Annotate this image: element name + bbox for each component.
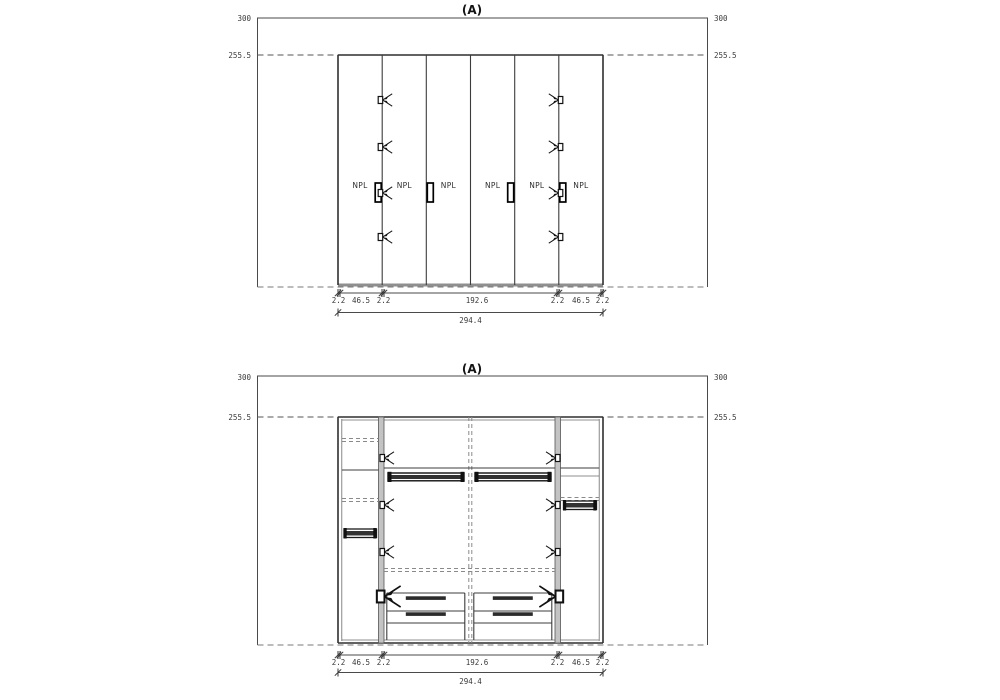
- ceiling-height-label: 300: [714, 373, 728, 382]
- door-label: NPL: [352, 181, 368, 190]
- dim-label: 46.5: [352, 658, 370, 667]
- dimension-row: 2.2 46.5 2.2 192.6 2.2 46.5 2.2: [332, 651, 610, 667]
- room-outline: [258, 18, 708, 287]
- hinge-fork-icon: [549, 94, 563, 106]
- door-label: NPL: [441, 181, 457, 190]
- dim-label: 2.2: [332, 658, 346, 667]
- wardrobe-interior: [338, 417, 603, 643]
- unit-height-label: 255.5: [228, 51, 251, 60]
- dim-label: 2.2: [377, 658, 391, 667]
- hanging-rail: [344, 528, 377, 539]
- dim-label: 2.2: [596, 658, 610, 667]
- ceiling-height-label: 300: [237, 373, 251, 382]
- right-column: [561, 468, 600, 511]
- dim-label: 2.2: [596, 296, 610, 305]
- unit-height-label: 255.5: [228, 413, 251, 422]
- drawer-stack: [387, 593, 465, 640]
- hinge-fork-icon: [378, 141, 392, 153]
- door-handle: [508, 183, 514, 202]
- dim-label: 2.2: [332, 296, 346, 305]
- hinge-fork-icon: [549, 141, 563, 153]
- top-view-title: (A): [462, 3, 482, 17]
- dim-label: 46.5: [572, 296, 590, 305]
- total-dimension: 294.4: [335, 309, 606, 326]
- unit-height-label: 255.5: [714, 51, 737, 60]
- left-column: [342, 439, 379, 539]
- bottom-view-title: (A): [462, 362, 482, 376]
- drawer-stack: [474, 593, 552, 640]
- drawer-handle: [493, 596, 533, 600]
- hinge-fork-icon: [549, 231, 563, 243]
- hinge-fork-icon: [378, 94, 392, 106]
- dim-label: 46.5: [352, 296, 370, 305]
- vertical-divider: [379, 417, 385, 643]
- drawer-handle: [406, 612, 446, 616]
- total-dim-label: 294.4: [459, 316, 482, 325]
- hinge-fork-icon: [378, 231, 392, 243]
- wardrobe-technical-drawing: (A) 300 300 255.5 255.5 NPL NPL: [0, 0, 1000, 700]
- total-dimension: 294.4: [335, 669, 606, 687]
- height-labels: 300 300 255.5 255.5: [228, 373, 736, 422]
- unit-height-label: 255.5: [714, 413, 737, 422]
- dimension-row: 2.2 46.5 2.2 192.6 2.2 46.5 2.2: [332, 289, 610, 305]
- door-label: NPL: [529, 181, 545, 190]
- door-label: NPL: [397, 181, 413, 190]
- dim-label: 2.2: [551, 296, 565, 305]
- top-view: (A) 300 300 255.5 255.5 NPL NPL: [228, 3, 736, 325]
- bottom-view: (A) 300 300 255.5 255.5: [228, 362, 736, 686]
- total-dim-label: 294.4: [459, 677, 482, 686]
- ceiling-height-label: 300: [237, 14, 251, 23]
- dim-label: 192.6: [466, 296, 489, 305]
- height-labels: 300 300 255.5 255.5: [228, 14, 736, 60]
- dim-label: 2.2: [551, 658, 565, 667]
- dim-label: 192.6: [466, 658, 489, 667]
- dim-label: 46.5: [572, 658, 590, 667]
- door-label: NPL: [573, 181, 589, 190]
- drawer-handle: [406, 596, 446, 600]
- hanging-rail: [475, 472, 552, 482]
- drawer-handle: [493, 612, 533, 616]
- vertical-divider: [555, 417, 561, 643]
- center-section: [384, 468, 555, 640]
- hanging-rail: [388, 472, 465, 482]
- drawing-canvas: (A) 300 300 255.5 255.5 NPL NPL: [0, 0, 1000, 700]
- ceiling-height-label: 300: [714, 14, 728, 23]
- door-label: NPL: [485, 181, 501, 190]
- door-handle: [427, 183, 433, 202]
- wardrobe-doors: NPL NPL NPL NPL NPL NPL: [338, 55, 603, 285]
- dim-label: 2.2: [377, 296, 391, 305]
- hanging-rail: [563, 500, 597, 511]
